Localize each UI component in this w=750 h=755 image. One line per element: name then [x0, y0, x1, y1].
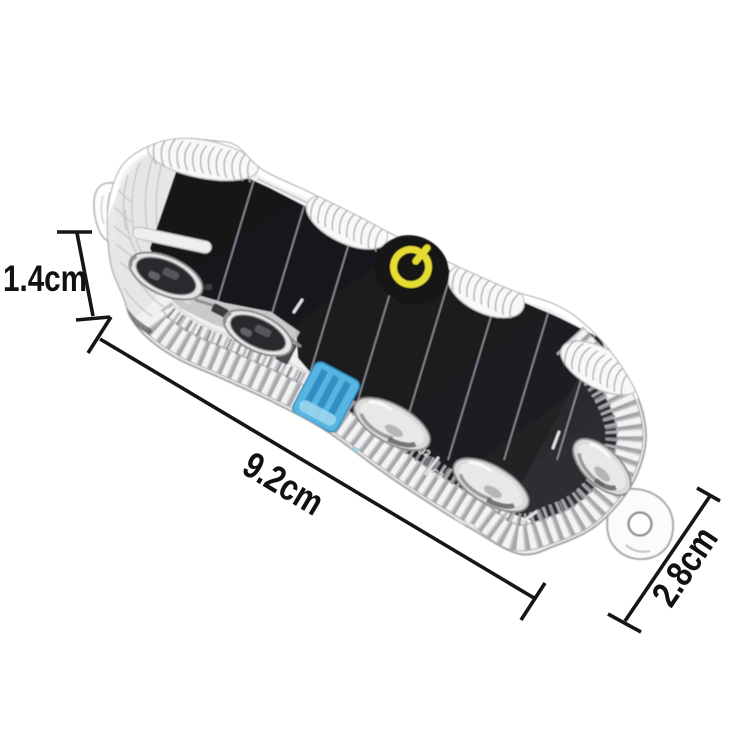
svg-text:1.4cm: 1.4cm	[3, 258, 87, 299]
